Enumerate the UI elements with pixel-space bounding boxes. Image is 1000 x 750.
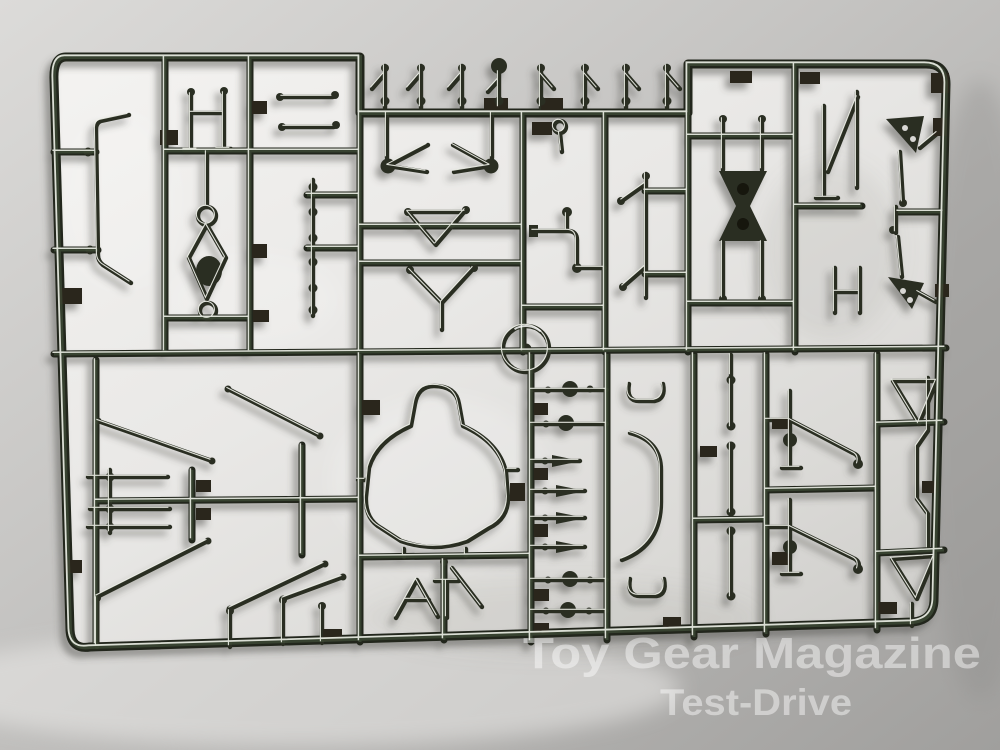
photo-model-kit-sprue: Toy Gear Magazine Test-Drive <box>0 0 1000 750</box>
sprue <box>52 55 949 656</box>
watermark-line2: Test-Drive <box>660 682 852 723</box>
sprue-photo-svg: Toy Gear Magazine Test-Drive <box>0 0 1000 750</box>
shift-knob-disc <box>491 58 507 74</box>
pipe-flange <box>529 225 538 237</box>
watermark-line1: Toy Gear Magazine <box>523 629 981 678</box>
